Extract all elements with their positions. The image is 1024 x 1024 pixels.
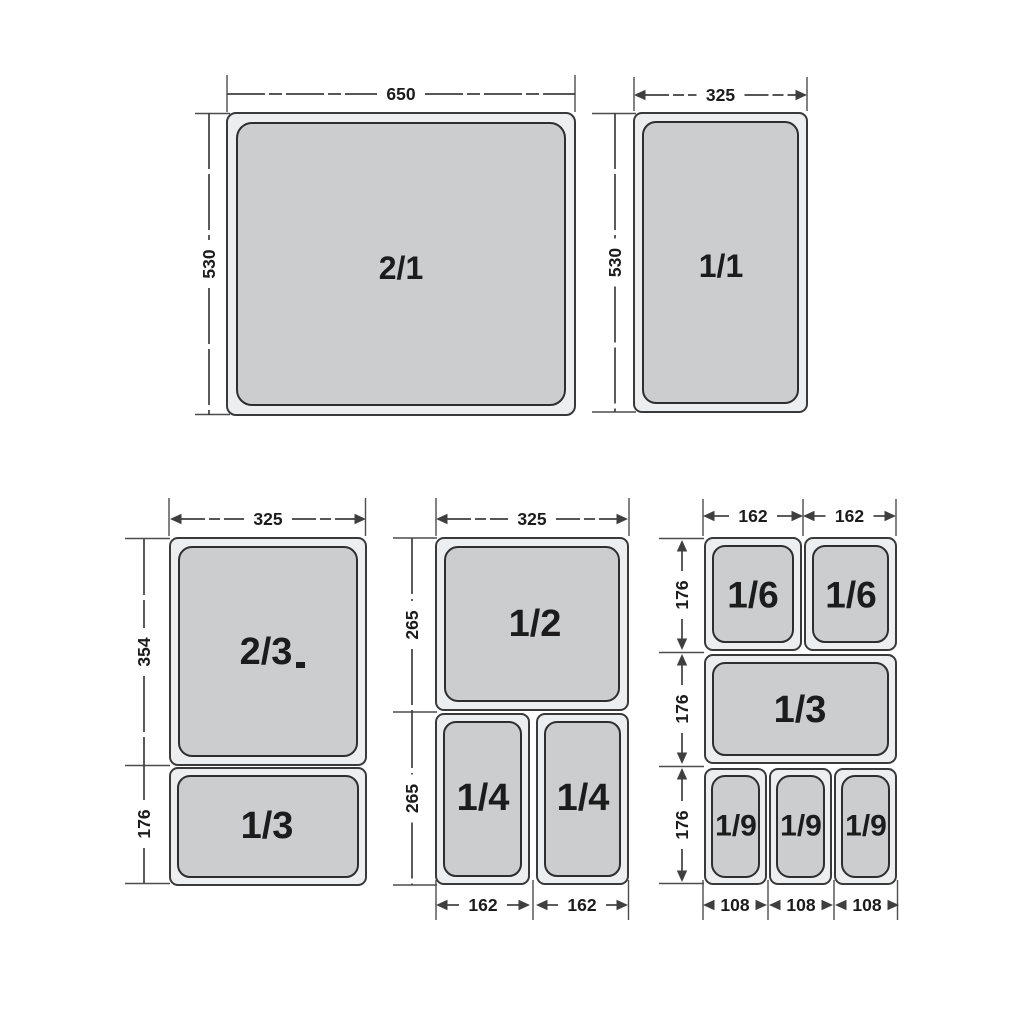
svg-text:162: 162 — [835, 506, 864, 526]
svg-text:108: 108 — [852, 895, 881, 915]
svg-text:108: 108 — [786, 895, 815, 915]
svg-text:176: 176 — [134, 809, 154, 838]
svg-text:1/4: 1/4 — [557, 777, 610, 819]
svg-text:354: 354 — [134, 637, 154, 666]
svg-text:1/9: 1/9 — [845, 810, 887, 843]
svg-text:1/1: 1/1 — [699, 248, 743, 284]
svg-text:1/2: 1/2 — [509, 603, 562, 645]
svg-text:325: 325 — [253, 509, 282, 529]
svg-text:1/4: 1/4 — [457, 777, 510, 819]
svg-text:162: 162 — [567, 895, 596, 915]
svg-text:1/9: 1/9 — [780, 810, 822, 843]
svg-text:650: 650 — [386, 84, 415, 104]
svg-text:1/3: 1/3 — [774, 689, 827, 731]
svg-text:265: 265 — [402, 610, 422, 639]
svg-text:2/3: 2/3 — [240, 631, 293, 673]
svg-text:176: 176 — [672, 580, 692, 609]
svg-text:530: 530 — [605, 248, 625, 277]
svg-text:325: 325 — [517, 509, 546, 529]
svg-text:176: 176 — [672, 810, 692, 839]
svg-text:1/6: 1/6 — [825, 575, 876, 616]
svg-text:162: 162 — [738, 506, 767, 526]
svg-text:108: 108 — [720, 895, 749, 915]
svg-text:162: 162 — [468, 895, 497, 915]
svg-text:2/1: 2/1 — [379, 250, 423, 286]
svg-text:265: 265 — [402, 784, 422, 813]
svg-text:176: 176 — [672, 694, 692, 723]
svg-text:1/6: 1/6 — [727, 575, 778, 616]
svg-text:325: 325 — [706, 85, 735, 105]
svg-text:1/3: 1/3 — [241, 805, 294, 847]
svg-text:1/9: 1/9 — [715, 810, 757, 843]
svg-text:530: 530 — [199, 249, 219, 278]
